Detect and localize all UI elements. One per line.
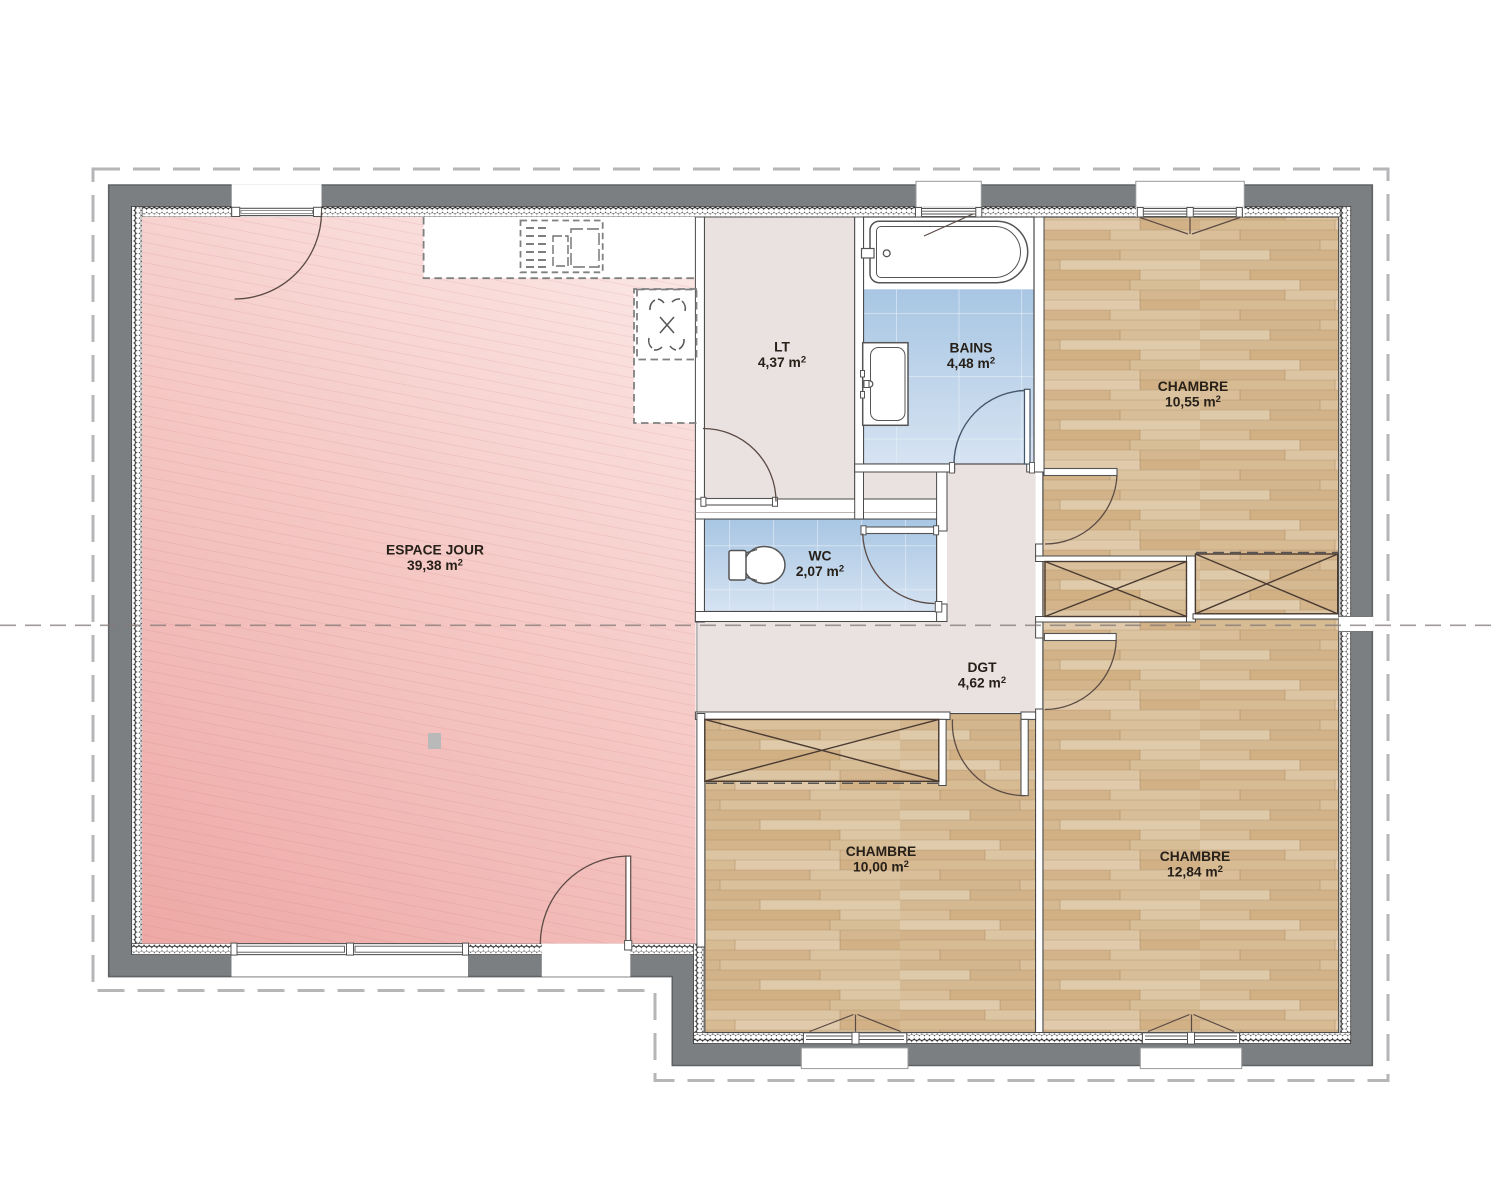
svg-text:CHAMBRE: CHAMBRE bbox=[1158, 379, 1229, 394]
svg-text:ESPACE JOUR: ESPACE JOUR bbox=[386, 543, 484, 558]
svg-text:4,62 m2: 4,62 m2 bbox=[958, 675, 1006, 691]
svg-text:4,48 m2: 4,48 m2 bbox=[947, 356, 995, 372]
svg-text:2,07 m2: 2,07 m2 bbox=[796, 564, 844, 580]
svg-text:39,38 m2: 39,38 m2 bbox=[407, 558, 463, 574]
svg-text:10,00 m2: 10,00 m2 bbox=[853, 859, 909, 875]
svg-text:LT: LT bbox=[774, 340, 790, 355]
svg-text:12,84 m2: 12,84 m2 bbox=[1167, 864, 1223, 880]
svg-text:BAINS: BAINS bbox=[950, 341, 993, 356]
svg-text:DGT: DGT bbox=[967, 660, 997, 675]
svg-text:10,55 m2: 10,55 m2 bbox=[1165, 394, 1221, 410]
svg-text:4,37 m2: 4,37 m2 bbox=[758, 355, 806, 371]
svg-text:WC: WC bbox=[809, 549, 832, 564]
svg-text:CHAMBRE: CHAMBRE bbox=[846, 844, 917, 859]
svg-text:CHAMBRE: CHAMBRE bbox=[1160, 849, 1231, 864]
